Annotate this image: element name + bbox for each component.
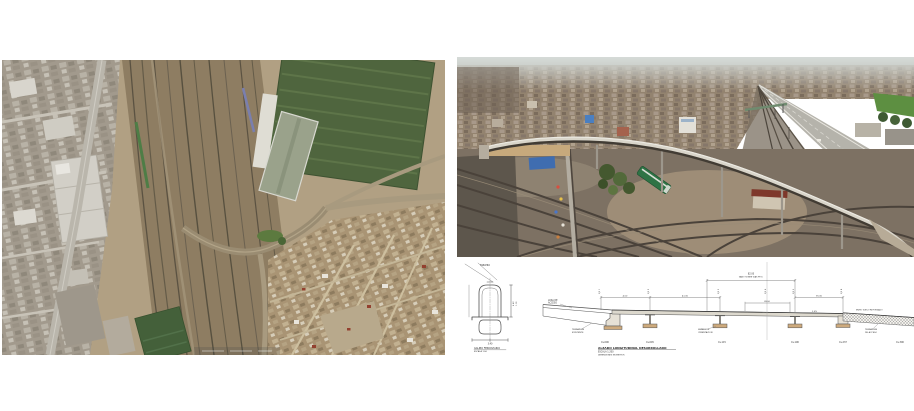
axis-label: EJE 1 [599, 288, 601, 294]
photo-green-field [873, 93, 914, 117]
photo-viaduct-abutment [479, 145, 489, 159]
drawing-embankment-hatched [843, 313, 914, 326]
drawing-pier [713, 316, 727, 328]
photo-blue-tarp [529, 156, 556, 170]
gauge-caption-line2: ESCALA 1:50 [474, 350, 488, 353]
composite-figure: TABLERO 3.40 4.43 1.10 GALIBO FERROVIARI… [0, 0, 914, 411]
photo-dark-buildings-left [457, 67, 519, 113]
chainage-label: 0+115 [718, 341, 726, 344]
gauge-dim-right-label-1: 4.43 [513, 301, 515, 306]
elevation-drawing: TABLERO 3.40 4.43 1.10 GALIBO FERROVIARI… [460, 260, 914, 364]
satellite-map-image [2, 60, 445, 355]
drawing-chainage-row: 0+000 0+045 0+115 0+190 0+237 0+300 [601, 341, 904, 344]
gauge-caption-line1: GALIBO FERROVIARIO [474, 347, 500, 350]
approach-label-2: EXISTENTE [572, 332, 584, 334]
gauge-leader-label: TABLERO [480, 264, 490, 267]
aerial-photo-image [457, 57, 914, 257]
drawing-deck [612, 310, 843, 317]
footing-label-1: ZAPATA DE [698, 328, 710, 331]
chainage-label: 0+190 [791, 341, 799, 344]
drawing-title-block: ALZADO LONGITUDINAL DESARROLLADO ESCALA … [598, 346, 676, 357]
elevation-ramp-top-label: MURO SUELO REFORZADO [856, 309, 883, 312]
photo-dark-yard-left [457, 153, 519, 257]
ramp-label-2: DE ACCESO [865, 331, 877, 334]
elevation-main-span-note: VANO SOBRE VIAS FFCC [739, 275, 764, 278]
axis-label: EJE 2 [648, 288, 650, 294]
satellite-map-panel [2, 60, 445, 355]
axis-label: EJE 3 [718, 288, 720, 294]
axis-label: EJE 4 [765, 288, 767, 294]
drawing-approach [543, 305, 612, 326]
drawing-units-note: DIMENSIONES EN METROS [598, 354, 625, 356]
gauge-dim-bottom-label: 3.40 [488, 343, 493, 346]
ramp-label-1: TERRAPLEN [865, 328, 878, 331]
drawing-gauge-dim-bottom [472, 339, 508, 342]
chainage-label: 0+045 [646, 341, 654, 344]
drawing-pier [643, 315, 657, 328]
drawing-abutment-1 [604, 314, 622, 330]
drawing-piers [643, 315, 802, 328]
elevation-slope-label: 2.0% [812, 311, 817, 313]
gauge-dim-right-label-2: 1.10 [516, 301, 518, 306]
elevation-span-label-4: 28.00 [764, 301, 770, 303]
drawing-axis-labels: EJE 1 EJE 2 EJE 3 EJE 4 EJE 5 EJE 6 [599, 288, 843, 294]
elevation-span-label-2: 41.00 [682, 296, 689, 298]
photo-blue-building [585, 115, 594, 123]
drawing-scale-note: ESCALA 1:200 [598, 351, 614, 354]
axis-label: EJE 5 [793, 288, 795, 294]
map-attribution-watermark [194, 347, 280, 355]
elevation-span-label-3: 35.00 [816, 296, 823, 298]
elevation-drawing-panel: TABLERO 3.40 4.43 1.10 GALIBO FERROVIARI… [460, 260, 914, 364]
elevation-span-label-1: 4.00 [623, 296, 628, 298]
chainage-label: 0+237 [839, 341, 847, 344]
chainage-label: 0+300 [896, 341, 904, 344]
photo-rail-yard [457, 149, 914, 257]
axis-label: EJE 6 [841, 288, 843, 294]
elevation-leader-left-2: ACCESO [548, 302, 557, 305]
chainage-label: 0+000 [601, 341, 609, 344]
aerial-photo-panel [457, 57, 914, 257]
drawing-pier [788, 317, 802, 328]
drawing-gauge-dim-right [510, 285, 513, 317]
footing-label-2: CIMENTACION [698, 331, 713, 334]
drawing-dimension-chains [600, 279, 844, 313]
drawing-gauge-detail: TABLERO 3.40 4.43 1.10 GALIBO FERROVIARI… [465, 263, 518, 353]
elevation-main-span-value: 82.00 [748, 273, 755, 276]
drawing-elevation: LOSA DE ACCESO 2.0% [543, 262, 914, 356]
drawing-title: ALZADO LONGITUDINAL DESARROLLADO [598, 346, 667, 350]
